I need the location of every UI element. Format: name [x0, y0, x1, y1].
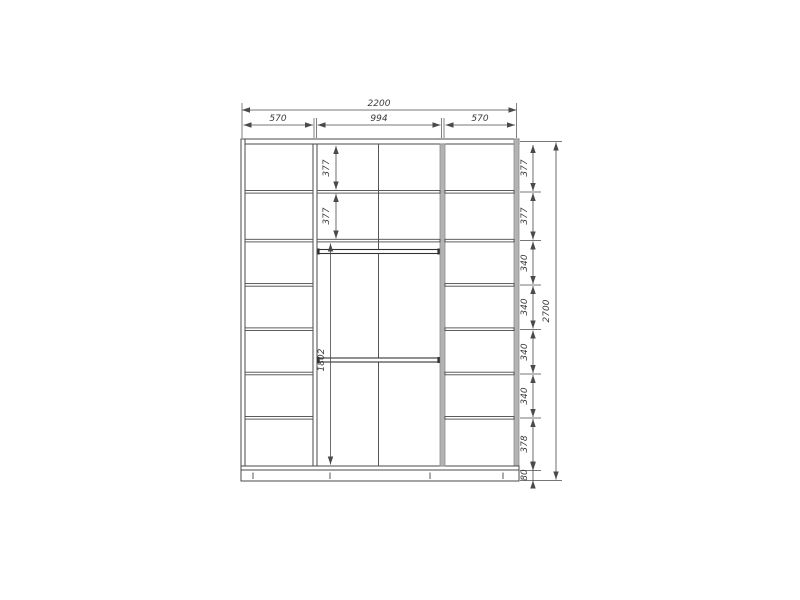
shelf-line: [245, 417, 313, 420]
shelf-line: [445, 284, 514, 287]
left-divider-panel: [313, 144, 317, 466]
dimension-label-chain: 377: [520, 159, 530, 176]
dimension-label-middle-open: 1802: [317, 348, 327, 371]
rod-bracket: [317, 249, 319, 255]
shelf-line: [445, 191, 514, 194]
shelf-line: [445, 328, 514, 331]
right-divider-panel: [440, 144, 445, 466]
right-dimensions: 377 377 340 340 340 340 378 80 2700: [520, 142, 562, 489]
dimension-label-middle-row: 377: [322, 207, 332, 224]
top-dimensions: 2200 570 994 570: [242, 99, 517, 138]
shelf-line: [445, 239, 514, 242]
dimension-label-chain: 80: [520, 469, 530, 481]
dimension-label-chain: 340: [520, 387, 530, 404]
shelf-line: [245, 239, 313, 242]
dimension-label-section: 994: [370, 114, 387, 124]
shelf-line: [245, 191, 313, 194]
hanging-rod-lower: [317, 357, 440, 363]
dimension-label-overall-width: 2200: [368, 99, 391, 109]
rod-bracket: [437, 249, 439, 255]
cabinet-structure: [241, 139, 519, 481]
dimension-label-chain: 377: [520, 207, 530, 224]
middle-dimensions: 377 377 1802: [317, 146, 336, 465]
dimension-label-section: 570: [471, 114, 488, 124]
dimension-label-overall-height: 2700: [542, 299, 552, 322]
wardrobe-dimension-drawing: 2200 570 994 570 377 377 340 340 340 340: [0, 0, 800, 600]
rod-bracket: [437, 357, 439, 363]
bottom-panel: [241, 466, 519, 470]
plinth: [241, 470, 519, 481]
dimension-label-section: 570: [269, 114, 286, 124]
dimension-label-chain: 340: [520, 254, 530, 271]
dimension-label-chain: 340: [520, 298, 530, 315]
dimension-label-chain: 378: [520, 435, 530, 452]
drawing-canvas: 2200 570 994 570 377 377 340 340 340 340: [0, 0, 800, 600]
shelf-line: [245, 328, 313, 331]
shelf-line: [245, 372, 313, 375]
dimension-label-middle-row: 377: [322, 159, 332, 176]
dimension-label-chain: 340: [520, 343, 530, 360]
right-side-panel: [514, 139, 519, 470]
top-panel: [241, 139, 519, 144]
shelf-line: [445, 372, 514, 375]
shelf-line: [245, 284, 313, 287]
left-side-panel: [241, 139, 245, 470]
shelf-line: [445, 417, 514, 420]
hanging-rod-upper: [317, 249, 440, 255]
